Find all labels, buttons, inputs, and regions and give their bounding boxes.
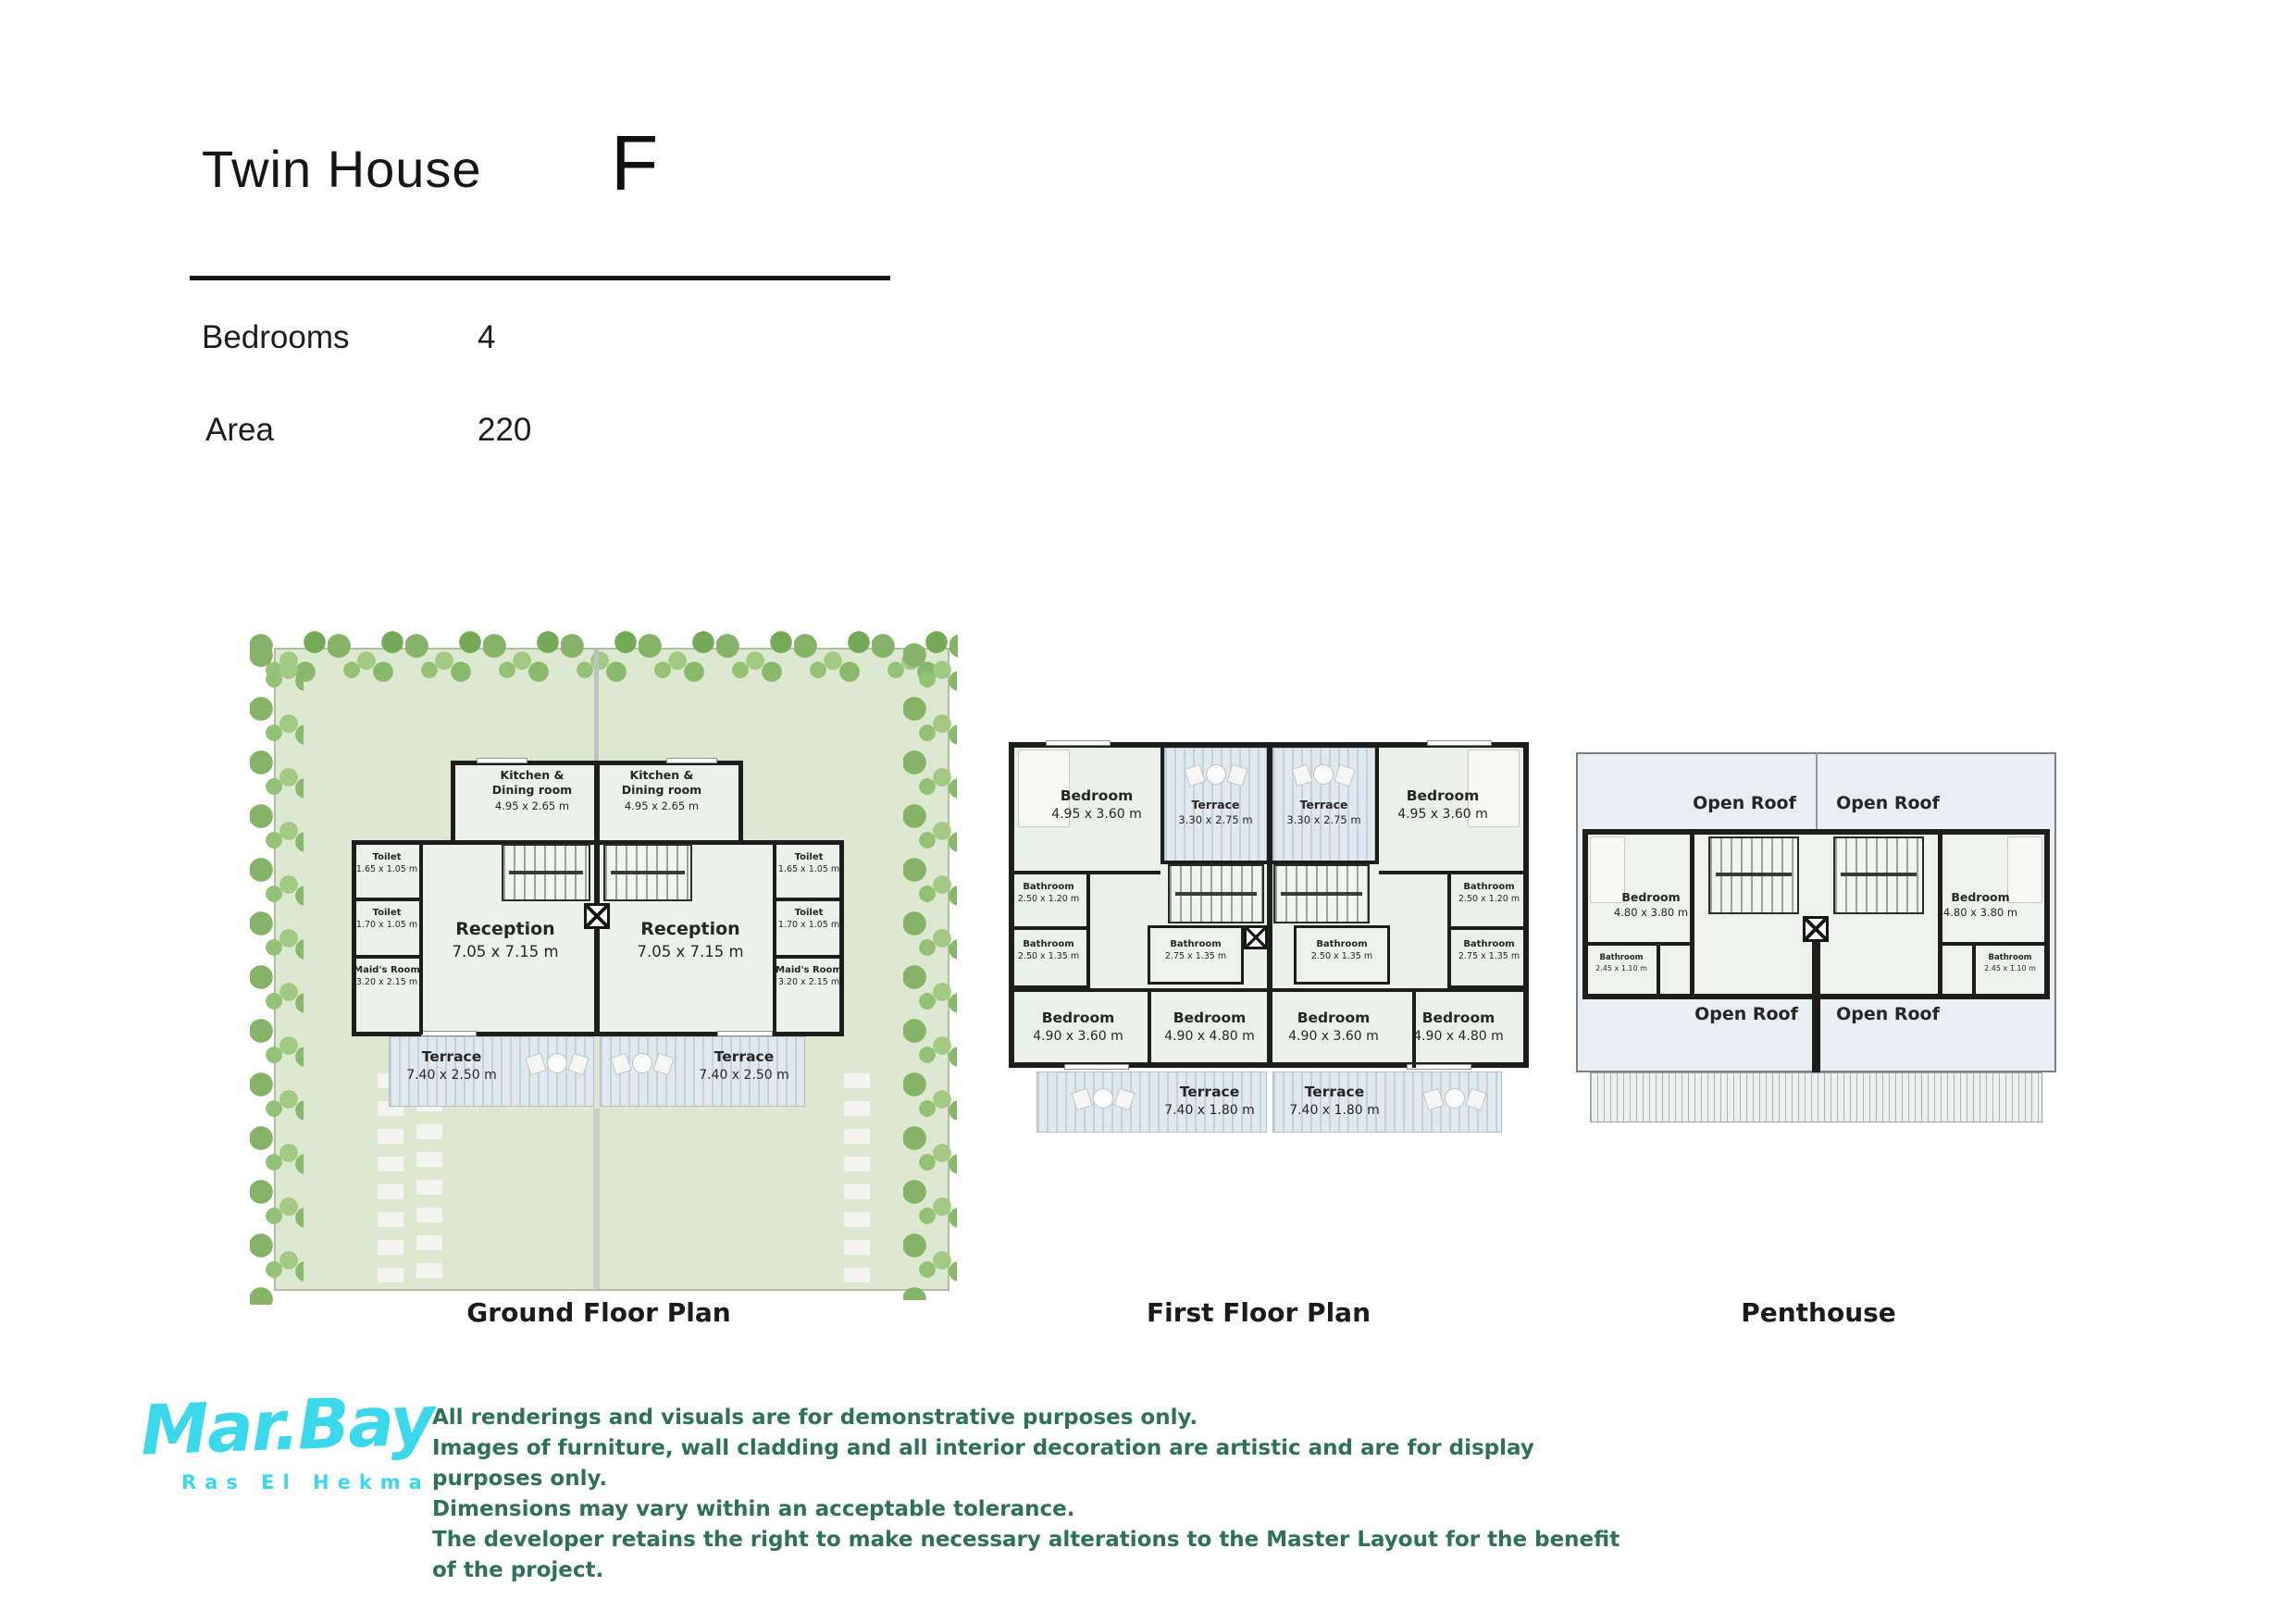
round-table-icon — [1445, 1088, 1465, 1109]
wall — [354, 898, 421, 901]
room-label-open-roof-bottom-left: Open Roof — [1677, 1003, 1816, 1026]
spec-bedrooms-label: Bedrooms — [202, 319, 350, 356]
wall — [775, 955, 842, 959]
room-label-toilet-upper-right: Toilet 1.65 x 1.05 m — [776, 851, 842, 875]
room-label-open-roof-top-right: Open Roof — [1818, 792, 1957, 815]
tree-hedge-right — [903, 638, 957, 1300]
room-label-terrace-bottom-left: Terrace 7.40 x 1.80 m — [1152, 1083, 1267, 1119]
wall — [1449, 926, 1523, 930]
room-label-kitchen-right: Kitchen & Dining room 4.95 x 2.65 m — [600, 768, 724, 812]
disclaimer-block: All renderings and visuals are for demon… — [432, 1403, 1635, 1586]
disclaimer-line: All renderings and visuals are for demon… — [432, 1403, 1635, 1433]
stair-rail — [611, 871, 686, 874]
page-title: Twin House — [202, 139, 482, 199]
brand-tagline: Ras El Hekma — [181, 1471, 430, 1493]
room-label-bathroom-lower-left: Bathroom 2.50 x 1.35 m — [1011, 938, 1086, 962]
room-label-toilet-lower-left: Toilet 1.70 x 1.05 m — [354, 907, 420, 931]
window — [666, 758, 717, 763]
room-label-terrace-top-right: Terrace 3.30 x 2.75 m — [1272, 798, 1375, 827]
room-label-bathroom-center-left: Bathroom 2.75 x 1.35 m — [1149, 938, 1242, 962]
round-table-icon — [1206, 764, 1226, 785]
spec-area-label: Area — [205, 412, 274, 449]
room-label-bathroom-right: Bathroom 2.45 x 1.10 m — [1975, 953, 2045, 973]
ground-floor-plan: Kitchen & Dining room 4.95 x 2.65 m Kitc… — [250, 629, 981, 1309]
room-label-maids-room-left: Maid's Room 3.20 x 2.15 m — [350, 964, 424, 988]
room-label-bedroom-left: Bedroom 4.80 x 3.80 m — [1605, 890, 1697, 920]
stair-rail — [1175, 892, 1257, 896]
patio-table-set — [1425, 1088, 1484, 1112]
patio-table-set — [1074, 1088, 1133, 1112]
elevator-shaft — [1803, 916, 1829, 942]
room-label-maids-room-right: Maid's Room 3.20 x 2.15 m — [772, 964, 846, 988]
wall — [775, 898, 842, 901]
room-label-bedroom-bottom-center-left: Bedroom 4.90 x 4.80 m — [1151, 1009, 1268, 1045]
stair-rail — [1281, 892, 1362, 896]
room-label-open-roof-top-left: Open Roof — [1675, 792, 1814, 815]
room-label-terrace-bottom-right: Terrace 7.40 x 1.80 m — [1277, 1083, 1392, 1119]
staircase-right-unit — [603, 844, 692, 901]
staircase-right-unit — [1833, 836, 1924, 914]
room-label-bathroom-center-right: Bathroom 2.50 x 1.35 m — [1296, 938, 1388, 962]
stepping-stones-left-2 — [416, 1096, 442, 1282]
wall — [1014, 988, 1523, 992]
staircase-left-unit — [502, 844, 590, 901]
room-label-bedroom-top-right: Bedroom 4.95 x 3.60 m — [1373, 787, 1512, 823]
disclaimer-line: Dimensions may vary within an acceptable… — [432, 1494, 1635, 1525]
spec-bedrooms-value: 4 — [478, 319, 495, 356]
round-table-icon — [547, 1053, 567, 1073]
pergola-strip — [1590, 1072, 2042, 1122]
elevator-shaft — [584, 903, 610, 929]
room-label-bedroom-top-left: Bedroom 4.95 x 3.60 m — [1027, 787, 1166, 823]
caption-ground-floor: Ground Floor Plan — [418, 1297, 779, 1328]
room-label-toilet-upper-left: Toilet 1.65 x 1.05 m — [354, 851, 420, 875]
round-table-icon — [1093, 1088, 1113, 1109]
floor-plan-sheet: Twin House F Bedrooms 4 Area 220 — [0, 0, 2296, 1623]
room-label-bathroom-upper-left: Bathroom 2.50 x 1.20 m — [1011, 881, 1086, 905]
window — [1064, 1064, 1129, 1070]
room-label-bedroom-right: Bedroom 4.80 x 3.80 m — [1934, 890, 2027, 920]
wall — [1657, 946, 1660, 996]
wall — [1940, 942, 2046, 946]
patio-table-set — [1294, 764, 1353, 788]
tree-hedge-left — [250, 638, 304, 1305]
room-label-kitchen-left: Kitchen & Dining room 4.95 x 2.65 m — [470, 768, 594, 812]
room-label-terrace-left: Terrace 7.40 x 2.50 m — [396, 1047, 507, 1084]
patio-table-set — [1186, 764, 1246, 788]
first-floor-plan: Bedroom 4.95 x 3.60 m Terrace 3.30 x 2.7… — [1009, 740, 1536, 1140]
disclaimer-line: Images of furniture, wall cladding and a… — [432, 1433, 1635, 1494]
room-label-bedroom-bottom-far-right: Bedroom 4.90 x 4.80 m — [1397, 1009, 1520, 1045]
wall — [354, 955, 421, 959]
round-table-icon — [1313, 764, 1334, 785]
patio-table-set — [613, 1053, 672, 1077]
plot-divider-top — [594, 650, 599, 761]
room-label-bathroom-lower-right: Bathroom 2.75 x 1.35 m — [1451, 938, 1527, 962]
wall — [1379, 871, 1523, 874]
disclaimer-line: The developer retains the right to make … — [432, 1525, 1635, 1586]
caption-penthouse: Penthouse — [1638, 1297, 1999, 1328]
tree-hedge-top — [250, 629, 958, 683]
room-label-toilet-lower-right: Toilet 1.70 x 1.05 m — [776, 907, 842, 931]
unit-letter: F — [611, 118, 658, 208]
stair-rail — [1841, 873, 1917, 876]
stepping-stones-right — [844, 1073, 870, 1284]
round-table-icon — [632, 1053, 652, 1073]
staircase-right-unit — [1273, 864, 1370, 923]
window — [1427, 740, 1492, 746]
penthouse-plan: Open Roof Open Roof Bedroom 4.80 x 3.80 … — [1573, 750, 2064, 1138]
room-label-terrace-right: Terrace 7.40 x 2.50 m — [689, 1047, 800, 1084]
window — [1407, 1064, 1471, 1070]
staircase-left-unit — [1168, 864, 1264, 923]
elevator-shaft — [1244, 925, 1268, 949]
window — [1046, 740, 1111, 746]
title-divider — [190, 276, 890, 280]
room-label-bathroom-left: Bathroom 2.45 x 1.10 m — [1586, 953, 1657, 973]
room-label-reception-left: Reception 7.05 x 7.15 m — [428, 918, 583, 961]
room-label-reception-right: Reception 7.05 x 7.15 m — [613, 918, 768, 961]
wall — [1086, 871, 1090, 989]
plot-divider-bottom — [593, 1109, 600, 1289]
staircase-left-unit — [1708, 836, 1799, 914]
caption-first-floor: First Floor Plan — [1078, 1297, 1439, 1328]
wall — [1014, 926, 1088, 930]
window — [477, 758, 527, 763]
room-label-open-roof-bottom-right: Open Roof — [1818, 1003, 1957, 1026]
stair-rail — [509, 871, 584, 874]
patio-table-set — [527, 1053, 587, 1077]
room-label-terrace-top-left: Terrace 3.30 x 2.75 m — [1164, 798, 1267, 827]
room-label-bedroom-bottom-far-left: Bedroom 4.90 x 3.60 m — [1011, 1009, 1146, 1045]
room-label-bedroom-bottom-center-right: Bedroom 4.90 x 3.60 m — [1275, 1009, 1392, 1045]
brand-logo: Mar.Bay — [140, 1381, 435, 1471]
spec-area-value: 220 — [478, 412, 531, 449]
stair-rail — [1716, 873, 1793, 876]
wall — [1586, 942, 1693, 946]
room-label-bathroom-upper-right: Bathroom 2.50 x 1.20 m — [1451, 881, 1527, 905]
